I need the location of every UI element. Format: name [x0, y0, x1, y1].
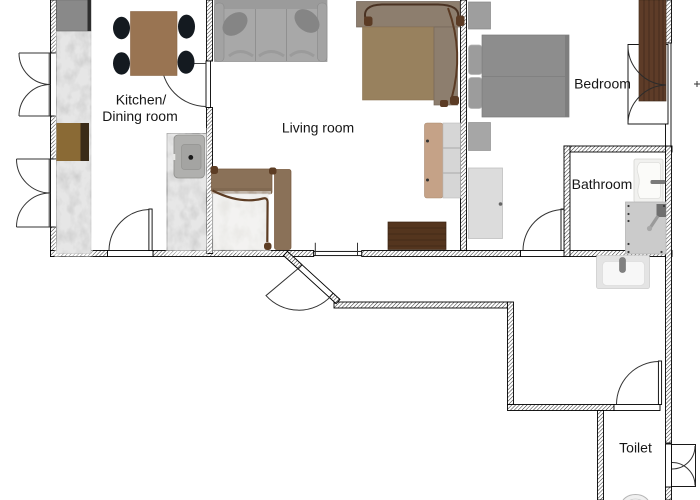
- svg-text:Kitchen/: Kitchen/: [116, 92, 167, 108]
- svg-text:Toilet: Toilet: [619, 440, 652, 456]
- svg-text:Bedroom: Bedroom: [574, 76, 631, 92]
- svg-text:Bathroom: Bathroom: [572, 176, 633, 192]
- svg-text:Dining room: Dining room: [102, 108, 177, 124]
- svg-text:Living room: Living room: [282, 120, 354, 136]
